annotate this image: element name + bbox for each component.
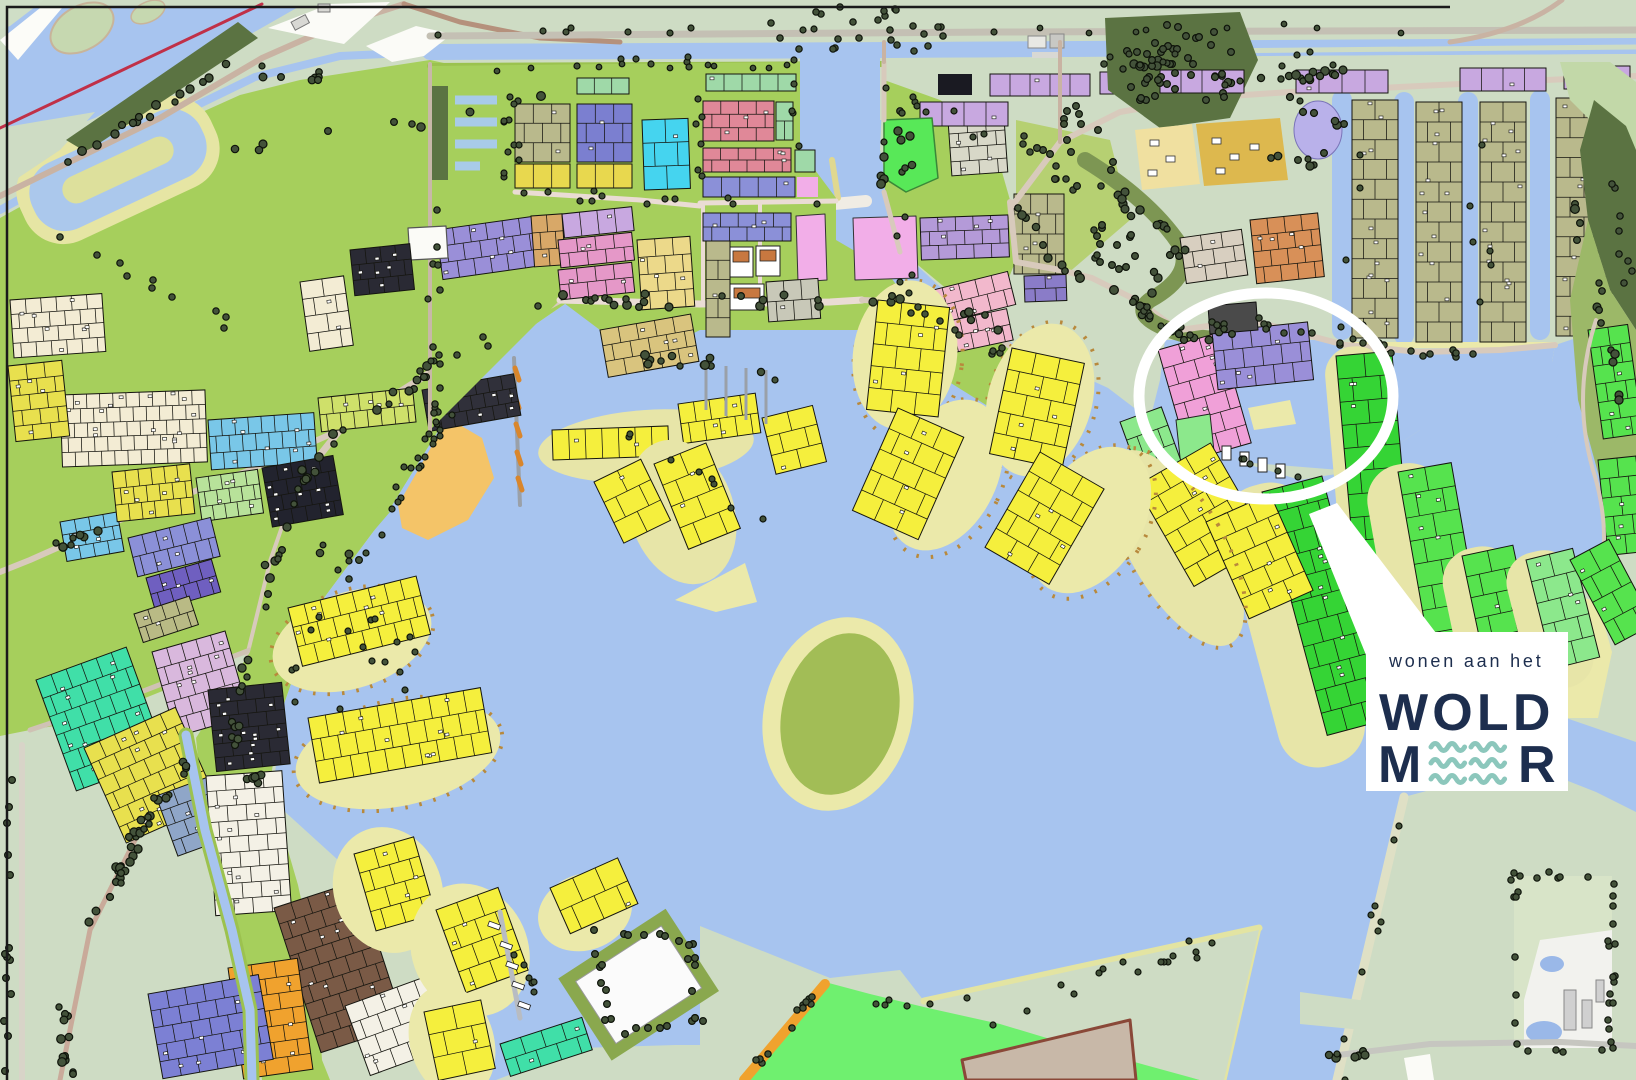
svg-text:wonen aan het: wonen aan het [1388,651,1544,671]
svg-text:R: R [1518,736,1556,794]
svg-text:WOLD: WOLD [1379,684,1555,742]
svg-text:M: M [1378,736,1421,794]
